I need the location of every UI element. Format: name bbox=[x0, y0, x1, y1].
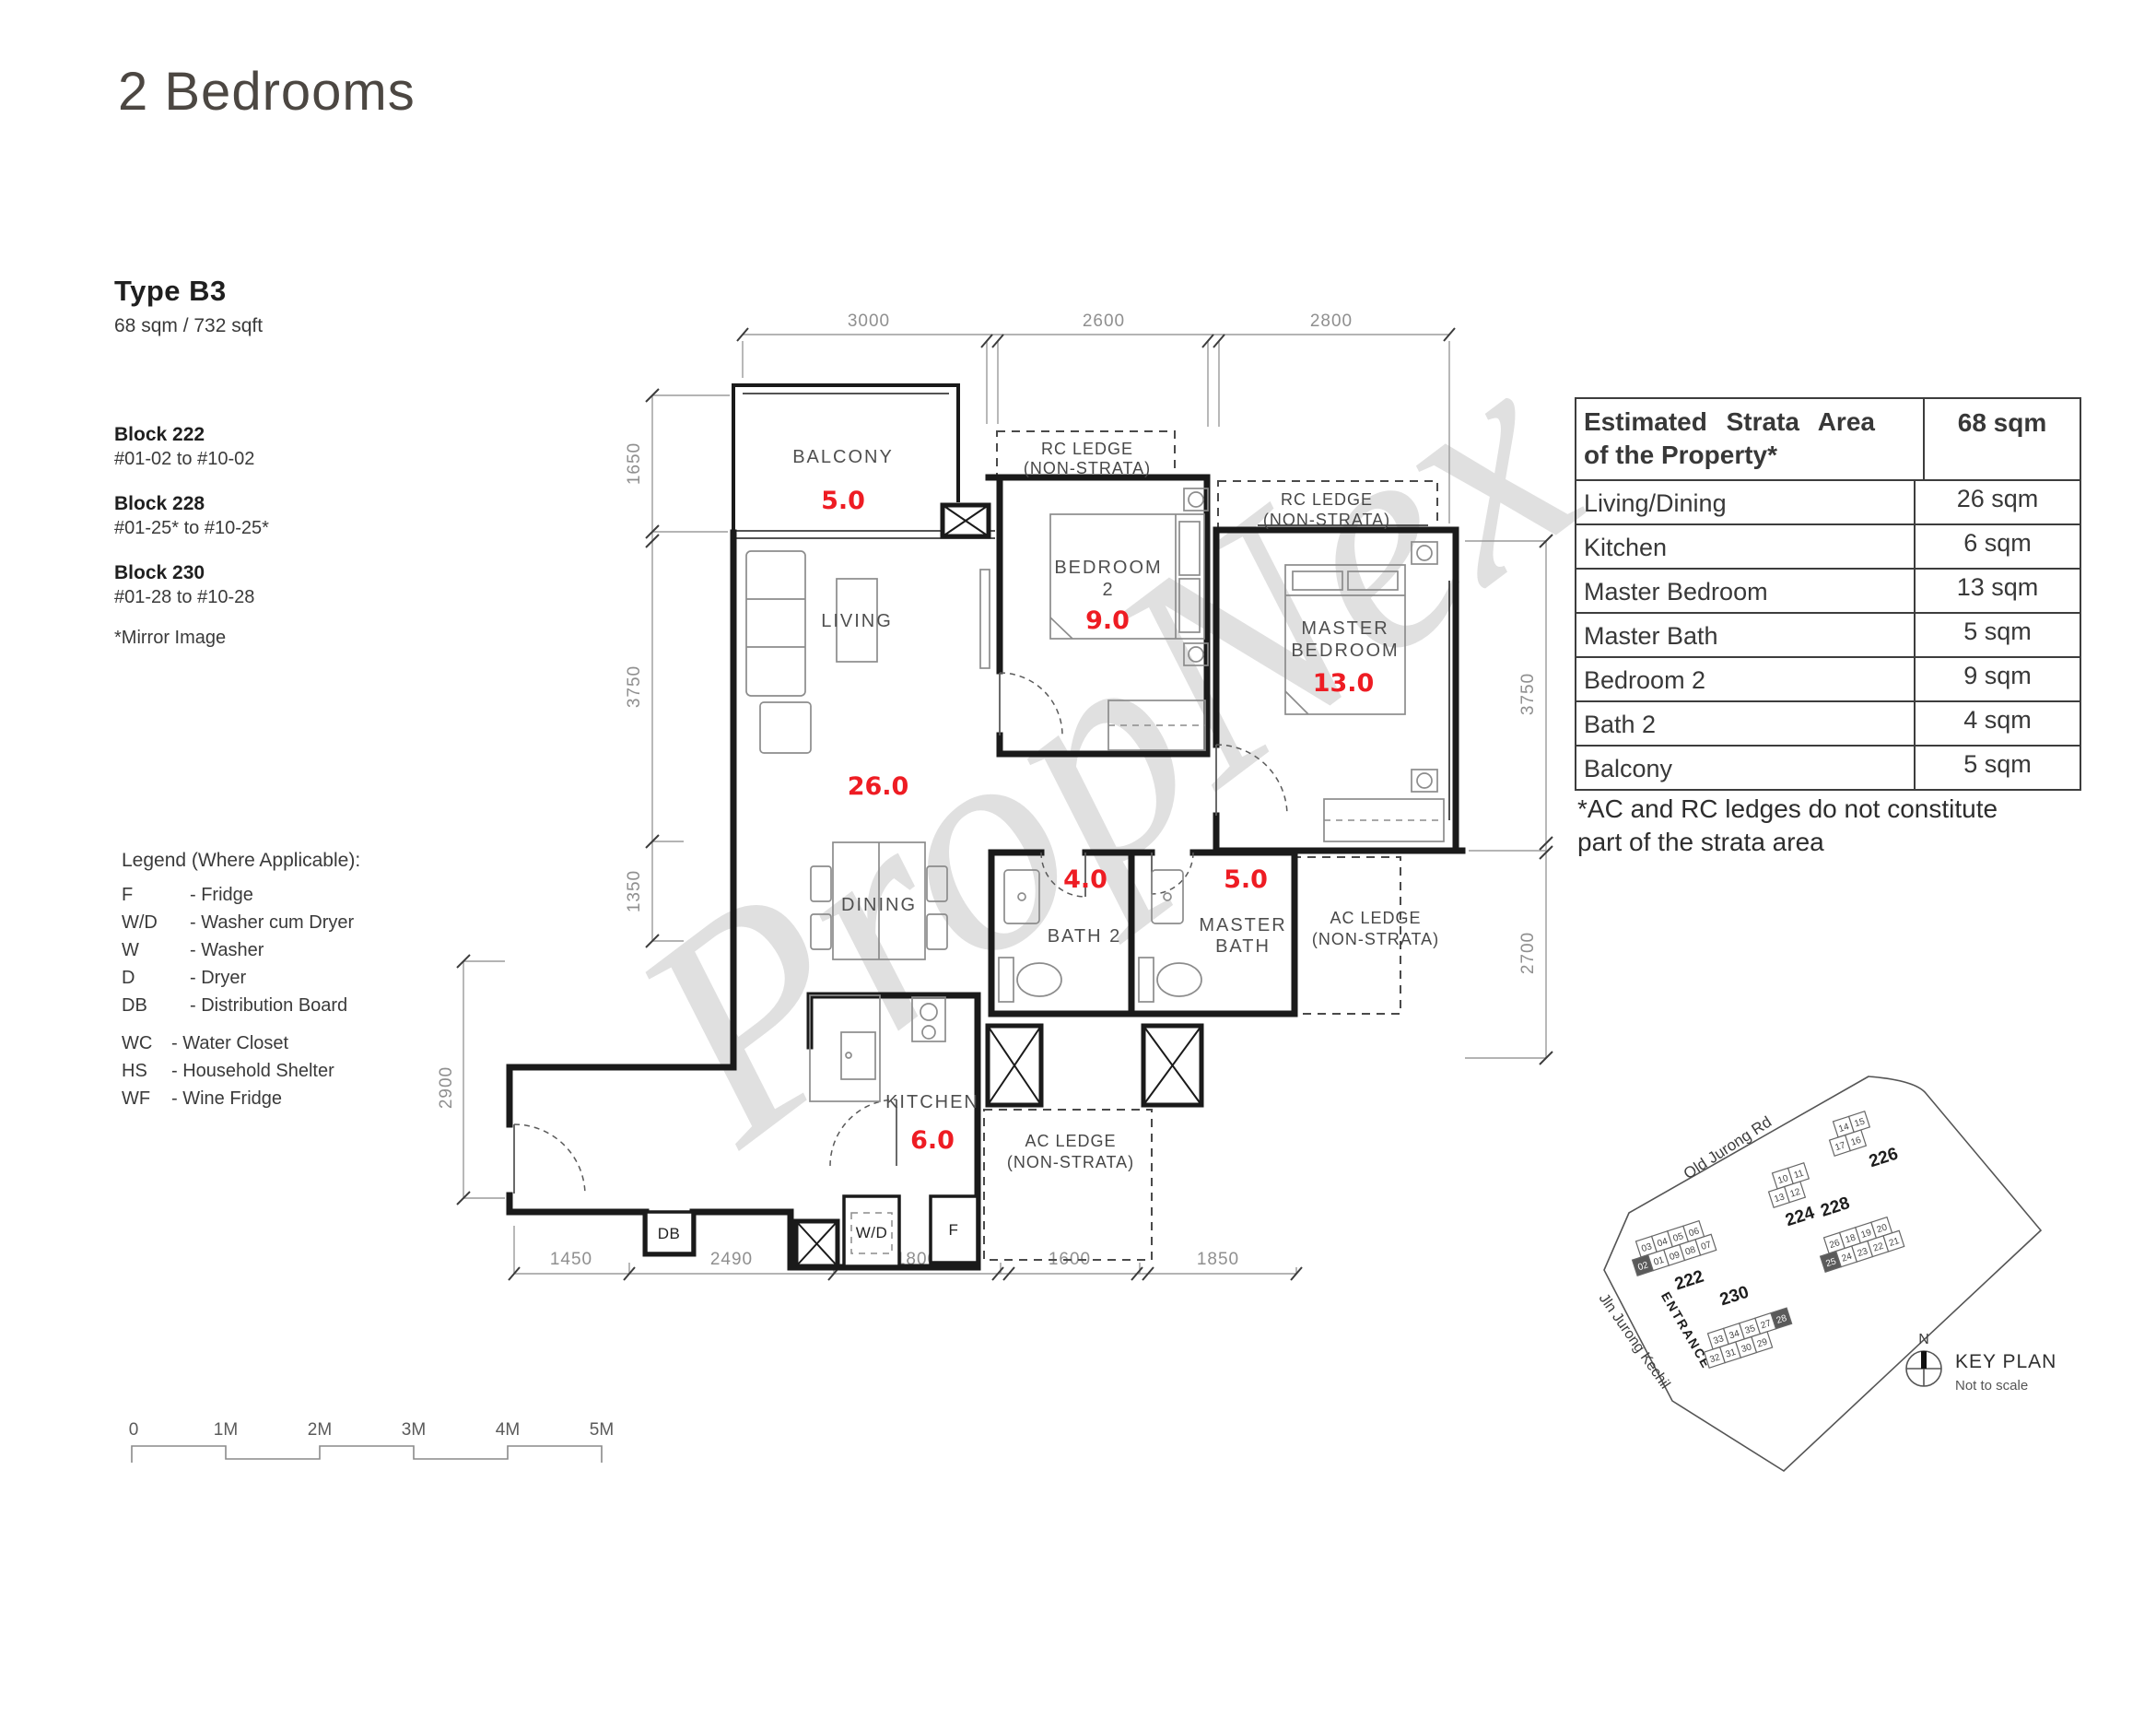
kitchen-area: 6.0 bbox=[910, 1126, 955, 1155]
kitchen-label: KITCHEN bbox=[885, 1092, 979, 1112]
block-name: Block 222 bbox=[114, 424, 269, 446]
floor-plan: 3000 2600 2800 1650 3750 1350 2900 3750 … bbox=[405, 304, 1594, 1346]
strata-row: Bath 24 sqm bbox=[1576, 700, 2080, 745]
strata-row-label: Bedroom 2 bbox=[1576, 658, 1914, 700]
dim-left-1: 1650 bbox=[625, 442, 644, 485]
legend-desc: - Dryer bbox=[190, 968, 426, 989]
legend-abbr: WF bbox=[122, 1088, 171, 1110]
strata-footnote-line2: part of the strata area bbox=[1577, 826, 1998, 859]
strata-row-value: 13 sqm bbox=[1914, 570, 2080, 612]
unit-type-label: Type B3 bbox=[114, 275, 227, 308]
balcony-label: BALCONY bbox=[792, 447, 894, 467]
strata-header-value: 68 sqm bbox=[1923, 399, 2080, 479]
legend-abbr: F bbox=[122, 885, 190, 906]
scale-5m: 5M bbox=[590, 1420, 614, 1440]
strata-row: Bedroom 29 sqm bbox=[1576, 656, 2080, 700]
ac-ledge-right-label: AC LEDGE bbox=[1330, 909, 1421, 927]
scale-2m: 2M bbox=[308, 1420, 332, 1440]
bath2-toilet bbox=[1017, 963, 1061, 996]
dimension-lines: 3000 2600 2800 1650 3750 1350 2900 3750 … bbox=[437, 312, 1553, 1280]
legend-group-appliances: F- FridgeW/D- Washer cum DryerW- WasherD… bbox=[122, 885, 426, 1017]
scale-bar-line bbox=[132, 1446, 602, 1463]
bath2-sink bbox=[1004, 870, 1039, 923]
legend-abbr: D bbox=[122, 968, 190, 989]
legend-desc: - Washer bbox=[190, 940, 426, 961]
strata-row-label: Master Bath bbox=[1576, 614, 1914, 656]
strata-row-label: Kitchen bbox=[1576, 525, 1914, 568]
strata-row-label: Living/Dining bbox=[1576, 481, 1914, 523]
legend-abbr: WC bbox=[122, 1033, 171, 1054]
legend-desc: - Water Closet bbox=[171, 1033, 426, 1054]
scale-4m: 4M bbox=[496, 1420, 520, 1440]
dim-right-1: 3750 bbox=[1518, 673, 1538, 715]
scale-0: 0 bbox=[129, 1420, 139, 1440]
bath2-label: BATH 2 bbox=[1048, 926, 1122, 947]
strata-row: Master Bedroom13 sqm bbox=[1576, 568, 2080, 612]
strata-table: Estimated Strata Area of the Property* 6… bbox=[1575, 397, 2081, 791]
washer-dryer-label: W/D bbox=[856, 1224, 888, 1241]
strata-row-value: 5 sqm bbox=[1914, 614, 2080, 656]
legend: Legend (Where Applicable): F- FridgeW/D-… bbox=[122, 850, 426, 1110]
block-unit-range: #01-02 to #10-02 bbox=[114, 449, 269, 470]
mirror-image-note: *Mirror Image bbox=[114, 628, 226, 649]
armchair bbox=[760, 702, 811, 753]
strata-row-value: 4 sqm bbox=[1914, 702, 2080, 745]
key-plan-block-226: 14151716226 bbox=[1824, 1106, 1901, 1182]
dining-chair bbox=[927, 866, 947, 901]
dining-chair bbox=[811, 866, 831, 901]
pillow bbox=[1179, 522, 1200, 575]
dim-left-3: 1350 bbox=[625, 870, 644, 912]
road-label-jln-jurong-kechil: Jln Jurong Kechil bbox=[1596, 1291, 1673, 1393]
dim-left-2: 3750 bbox=[625, 665, 644, 708]
master-bedroom-area: 13.0 bbox=[1313, 669, 1375, 698]
strata-row-label: Master Bedroom bbox=[1576, 570, 1914, 612]
strata-footnote: *AC and RC ledges do not constitute part… bbox=[1577, 793, 1998, 859]
strata-header-line1: Estimated Strata Area bbox=[1584, 406, 1914, 439]
ac-ledge-bottom-label: AC LEDGE bbox=[1025, 1132, 1116, 1150]
strata-table-header: Estimated Strata Area of the Property* 6… bbox=[1576, 399, 2080, 479]
db-label: DB bbox=[658, 1225, 681, 1242]
tv-console bbox=[980, 570, 990, 668]
north-compass: N bbox=[1906, 1332, 1941, 1386]
dim-right-2: 2700 bbox=[1518, 932, 1538, 974]
legend-abbr: DB bbox=[122, 995, 190, 1017]
unit-area-label: 68 sqm / 732 sqft bbox=[114, 315, 263, 337]
rc-ledge-1-label: RC LEDGE bbox=[1041, 440, 1133, 458]
strata-row: Living/Dining26 sqm bbox=[1576, 479, 2080, 523]
legend-desc: - Fridge bbox=[190, 885, 426, 906]
key-plan: Old Jurong Rd Jln Jurong Kechil ENTRANCE… bbox=[1583, 1040, 2156, 1500]
dim-bottom-5: 1850 bbox=[1197, 1250, 1239, 1269]
strata-row: Balcony5 sqm bbox=[1576, 745, 2080, 789]
dim-top-2: 2600 bbox=[1083, 312, 1125, 331]
legend-group-rooms: WC- Water ClosetHS- Household ShelterWF-… bbox=[122, 1033, 426, 1110]
strata-row-value: 5 sqm bbox=[1914, 747, 2080, 789]
key-plan-title: KEY PLAN bbox=[1955, 1351, 2056, 1372]
strata-row-value: 6 sqm bbox=[1914, 525, 2080, 568]
strata-header-label: Estimated Strata Area of the Property* bbox=[1576, 399, 1923, 479]
scale-bar: 0 1M 2M 3M 4M 5M bbox=[124, 1415, 622, 1488]
key-plan-block-222: 030405060201090807222 bbox=[1627, 1218, 1726, 1304]
pillow bbox=[1179, 579, 1200, 632]
strata-row: Kitchen6 sqm bbox=[1576, 523, 2080, 568]
balcony-area: 5.0 bbox=[821, 487, 865, 515]
strata-footnote-line1: *AC and RC ledges do not constitute bbox=[1577, 793, 1998, 826]
rc-ledge-1-label2: (NON-STRATA) bbox=[1024, 459, 1151, 477]
bath2-area: 4.0 bbox=[1063, 865, 1107, 894]
master-bath-area: 5.0 bbox=[1224, 865, 1268, 894]
rc-ledge-2-label2: (NON-STRATA) bbox=[1263, 511, 1390, 529]
dining-chair bbox=[811, 914, 831, 949]
strata-row-label: Bath 2 bbox=[1576, 702, 1914, 745]
ac-ledge-bottom-label2: (NON-STRATA) bbox=[1007, 1153, 1134, 1171]
dim-bottom-1: 1450 bbox=[550, 1250, 592, 1269]
legend-desc: - Distribution Board bbox=[190, 995, 426, 1017]
master-bath-toilet-tank bbox=[1139, 958, 1154, 1002]
key-plan-block-number: 226 bbox=[1867, 1144, 1901, 1171]
pillow bbox=[1293, 571, 1342, 590]
key-plan-block-224: 10111312224 bbox=[1763, 1163, 1822, 1233]
legend-desc: - Household Shelter bbox=[171, 1061, 426, 1082]
dim-top-1: 3000 bbox=[848, 312, 890, 331]
kitchen-counter bbox=[810, 995, 880, 1101]
dining-label: DINING bbox=[841, 895, 917, 915]
dining-chair bbox=[927, 914, 947, 949]
key-plan-block-number: 224 bbox=[1783, 1203, 1817, 1230]
block-name: Block 228 bbox=[114, 493, 269, 515]
living-label: LIVING bbox=[821, 611, 893, 631]
block-item: Block 230#01-28 to #10-28 bbox=[114, 562, 269, 608]
strata-table-rows: Living/Dining26 sqmKitchen6 sqmMaster Be… bbox=[1576, 479, 2080, 789]
strata-header-line2: of the Property* bbox=[1584, 441, 1777, 469]
dim-top-3: 2800 bbox=[1310, 312, 1353, 331]
key-plan-note: Not to scale bbox=[1955, 1378, 2028, 1394]
key-plan-block-228: 261819202524232221228 bbox=[1804, 1182, 1904, 1272]
dim-bottom-2: 2490 bbox=[710, 1250, 753, 1269]
block-item: Block 222#01-02 to #10-02 bbox=[114, 424, 269, 470]
key-plan-block-number: 228 bbox=[1819, 1194, 1853, 1221]
bedroom2-area: 9.0 bbox=[1085, 606, 1130, 635]
bedroom2-label: BEDROOM bbox=[1054, 558, 1162, 578]
rc-ledge-2-label: RC LEDGE bbox=[1281, 490, 1373, 509]
sofa bbox=[746, 551, 805, 696]
legend-abbr: W/D bbox=[122, 912, 190, 934]
site-boundary bbox=[1604, 1076, 2041, 1471]
strata-row: Master Bath5 sqm bbox=[1576, 612, 2080, 656]
north-label: N bbox=[1918, 1332, 1929, 1347]
bath2-toilet-tank bbox=[999, 958, 1014, 1002]
dim-left-lower: 2900 bbox=[437, 1066, 456, 1109]
page-title: 2 Bedrooms bbox=[118, 61, 416, 123]
pillow bbox=[1348, 571, 1398, 590]
strata-row-label: Balcony bbox=[1576, 747, 1914, 789]
block-list: Block 222#01-02 to #10-02Block 228#01-25… bbox=[114, 424, 269, 631]
living-dining-area: 26.0 bbox=[848, 772, 909, 801]
block-unit-range: #01-28 to #10-28 bbox=[114, 587, 269, 608]
block-name: Block 230 bbox=[114, 562, 269, 584]
road-label-old-jurong: Old Jurong Rd bbox=[1681, 1113, 1775, 1183]
scale-1m: 1M bbox=[214, 1420, 238, 1440]
room-labels: BALCONY 5.0 LIVING 26.0 DINING RC LEDGE … bbox=[792, 440, 1439, 1171]
master-bedroom-label: MASTER bbox=[1301, 618, 1389, 639]
master-bath-toilet bbox=[1157, 963, 1201, 996]
legend-abbr: HS bbox=[122, 1061, 171, 1082]
key-plan-block-number: 222 bbox=[1672, 1267, 1706, 1295]
key-plan-block-number: 230 bbox=[1717, 1283, 1752, 1311]
bedroom2-label2: 2 bbox=[1102, 580, 1114, 600]
legend-title: Legend (Where Applicable): bbox=[122, 850, 426, 872]
key-plan-blocks: 0304050602010908072221011131222414151716… bbox=[1627, 1106, 1904, 1369]
legend-desc: - Wine Fridge bbox=[171, 1088, 426, 1110]
master-bath-label: MASTER bbox=[1199, 915, 1286, 935]
master-bath-sink bbox=[1152, 870, 1183, 923]
block-item: Block 228#01-25* to #10-25* bbox=[114, 493, 269, 539]
legend-desc: - Washer cum Dryer bbox=[190, 912, 426, 934]
block-unit-range: #01-25* to #10-25* bbox=[114, 518, 269, 539]
master-bedroom-label2: BEDROOM bbox=[1291, 641, 1399, 661]
scale-3m: 3M bbox=[402, 1420, 426, 1440]
master-bath-label2: BATH bbox=[1215, 936, 1271, 957]
legend-abbr: W bbox=[122, 940, 190, 961]
strata-row-value: 9 sqm bbox=[1914, 658, 2080, 700]
ac-ledge-right-label2: (NON-STRATA) bbox=[1312, 930, 1439, 948]
fridge-label: F bbox=[949, 1221, 959, 1239]
strata-row-value: 26 sqm bbox=[1914, 481, 2080, 523]
